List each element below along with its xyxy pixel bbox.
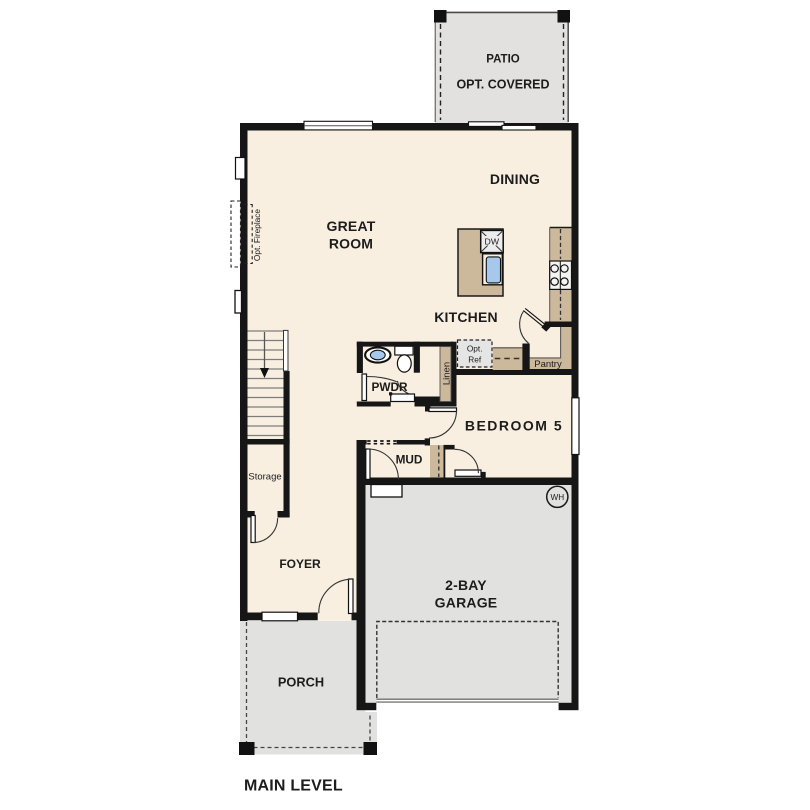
svg-text:WH: WH bbox=[550, 493, 564, 502]
svg-text:Ref: Ref bbox=[468, 355, 482, 365]
svg-text:DW: DW bbox=[485, 236, 500, 246]
svg-text:KITCHEN: KITCHEN bbox=[434, 309, 498, 325]
svg-text:MUD: MUD bbox=[396, 453, 423, 467]
svg-text:PWDR: PWDR bbox=[371, 380, 408, 394]
svg-text:GARAGE: GARAGE bbox=[435, 595, 498, 611]
svg-text:Opt.: Opt. bbox=[467, 344, 483, 354]
svg-text:Linen: Linen bbox=[441, 362, 452, 385]
svg-text:Pantry: Pantry bbox=[534, 359, 562, 370]
svg-text:GREAT: GREAT bbox=[327, 218, 376, 234]
svg-text:ROOM: ROOM bbox=[329, 236, 373, 252]
svg-text:MAIN LEVEL: MAIN LEVEL bbox=[244, 778, 343, 795]
svg-text:Storage: Storage bbox=[248, 472, 281, 483]
svg-text:PORCH: PORCH bbox=[278, 675, 324, 690]
svg-text:DINING: DINING bbox=[490, 171, 540, 187]
svg-text:Opt. Fireplace: Opt. Fireplace bbox=[252, 209, 262, 261]
svg-text:FOYER: FOYER bbox=[279, 557, 321, 571]
svg-text:OPT. COVERED: OPT. COVERED bbox=[456, 78, 549, 92]
svg-text:BEDROOM 5: BEDROOM 5 bbox=[465, 418, 563, 434]
svg-text:2-BAY: 2-BAY bbox=[445, 577, 487, 593]
svg-text:PATIO: PATIO bbox=[486, 54, 519, 66]
